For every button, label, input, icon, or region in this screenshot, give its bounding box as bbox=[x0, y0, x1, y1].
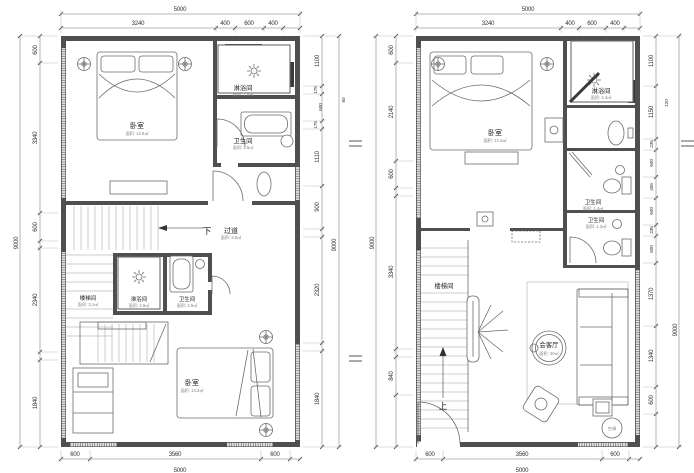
area-label: 面积: 1.8㎡ bbox=[233, 91, 255, 98]
ceiling-fan-icon bbox=[78, 58, 91, 71]
door-arc bbox=[213, 171, 243, 201]
bed bbox=[430, 52, 532, 164]
toilet bbox=[604, 239, 632, 256]
door-arc bbox=[570, 237, 596, 263]
dim-label: 3560 bbox=[169, 452, 182, 458]
room-label: 会客厅 bbox=[540, 340, 559, 349]
dim-label: 600 bbox=[587, 21, 597, 27]
area-label: 面积: 3.1㎡ bbox=[78, 301, 100, 308]
floor-plan-canvas: 5000 3240 400 600 400 600 3560 600 5000 … bbox=[0, 0, 694, 473]
direction-label: 下 bbox=[203, 226, 212, 236]
toilet bbox=[604, 177, 632, 194]
dim-label: 3340 bbox=[33, 131, 39, 144]
bathtub bbox=[170, 256, 193, 292]
wardrobe bbox=[73, 368, 113, 433]
stair-railing bbox=[467, 296, 508, 362]
stairs bbox=[80, 322, 168, 364]
dim-label: 9000 bbox=[673, 323, 679, 336]
dim-label: 600 bbox=[610, 452, 620, 458]
dim-label: 840 bbox=[389, 370, 395, 380]
down-arrow bbox=[158, 225, 204, 231]
dim-label: 1100 bbox=[649, 54, 655, 67]
door-arc bbox=[212, 276, 230, 294]
dim-label: 900 bbox=[315, 201, 321, 211]
dim-label: 600 bbox=[649, 159, 655, 167]
area-label: 面积: 1.4㎡ bbox=[583, 205, 605, 212]
room-label: 楼梯间 bbox=[435, 281, 454, 290]
dim-label: 600 bbox=[244, 21, 254, 27]
dim-label: 1840 bbox=[315, 392, 321, 405]
dim-label: 3560 bbox=[516, 452, 529, 458]
shower-room-box bbox=[218, 45, 290, 93]
cabinet bbox=[512, 231, 540, 242]
area-label: 面积: 2.5㎡ bbox=[177, 302, 199, 309]
dim-label: 1840 bbox=[33, 396, 39, 409]
dim-label: 3240 bbox=[482, 21, 495, 27]
dim-label: 600 bbox=[389, 44, 395, 54]
dim-label: 5000 bbox=[174, 7, 187, 13]
dim-label: 600 bbox=[270, 452, 280, 458]
dim-label: 3340 bbox=[389, 265, 395, 278]
room-label: 卧室 bbox=[185, 378, 199, 387]
dim-label: 600 bbox=[649, 245, 655, 253]
room-label: 淋浴间 bbox=[131, 295, 148, 303]
room-label: 淋浴间 bbox=[592, 86, 611, 95]
dim-label: 2320 bbox=[315, 283, 321, 296]
ceiling-fan-icon bbox=[541, 58, 554, 71]
dim-label: 400 bbox=[565, 21, 575, 27]
dim-label: 600 bbox=[318, 103, 324, 111]
break-marker bbox=[349, 141, 694, 361]
dim-label: 1340 bbox=[649, 349, 655, 362]
dim-label: 600 bbox=[649, 207, 655, 215]
dim-label: 9000 bbox=[370, 236, 376, 249]
dim-label: 455 bbox=[649, 183, 655, 191]
dim-label: 9000 bbox=[332, 238, 338, 251]
area-label: 面积: 14.3㎡ bbox=[180, 387, 204, 394]
dim-label: 600 bbox=[425, 452, 435, 458]
dim-label: 9000 bbox=[14, 236, 20, 249]
dim-label: 1150 bbox=[649, 105, 655, 118]
faucet bbox=[628, 128, 633, 138]
area-label: 面积: 12.4㎡ bbox=[483, 137, 507, 144]
vent-symbol bbox=[613, 220, 622, 229]
dim-label: 2140 bbox=[389, 105, 395, 118]
dim-label: 175 bbox=[313, 121, 319, 129]
dim-label: 400 bbox=[268, 21, 278, 27]
nightstand bbox=[545, 118, 563, 142]
area-label: 面积: 2.4㎡ bbox=[591, 94, 613, 101]
dim-label: 1370 bbox=[649, 287, 655, 300]
dim-label: 5000 bbox=[174, 468, 187, 473]
ceiling-fan-icon bbox=[179, 58, 192, 71]
dim-label: 600 bbox=[33, 44, 39, 54]
dim-label: 235 bbox=[649, 226, 655, 234]
room-label: 淋浴间 bbox=[234, 83, 253, 92]
right-plan: 5000 3240 400 600 400 600 3560 600 5000 … bbox=[370, 7, 682, 473]
sofa bbox=[577, 289, 628, 405]
room-label: 卫生间 bbox=[234, 136, 253, 145]
dim-label: 2340 bbox=[33, 293, 39, 306]
ac-label: 空调 bbox=[608, 425, 616, 432]
room-label: 过道 bbox=[224, 226, 238, 235]
vent-symbol bbox=[616, 166, 625, 175]
dim-label: 60 bbox=[341, 97, 347, 102]
room-label: 楼梯间 bbox=[80, 294, 97, 302]
dim-label: 600 bbox=[33, 221, 39, 231]
armchair bbox=[522, 385, 561, 424]
area-label: 面积: 2.6㎡ bbox=[129, 302, 151, 309]
dim-label: 120 bbox=[664, 99, 670, 107]
area-label: 面积: 12.6㎡ bbox=[125, 130, 149, 137]
ceiling-fan-icon bbox=[260, 424, 273, 437]
sink bbox=[477, 212, 493, 226]
door-leaf bbox=[569, 152, 592, 177]
up-arrow bbox=[440, 347, 447, 398]
dim-label: 600 bbox=[70, 452, 80, 458]
area-label: 面积: 1.3㎡ bbox=[586, 223, 608, 230]
area-label: 面积: 2.5㎡ bbox=[233, 144, 255, 151]
stairs bbox=[74, 181, 167, 250]
bathtub bbox=[241, 112, 291, 136]
dim-label: 1110 bbox=[315, 150, 321, 163]
direction-label: 上 bbox=[439, 401, 448, 411]
dim-label: 235 bbox=[649, 140, 655, 148]
dim-label: 600 bbox=[649, 394, 655, 404]
room-label: 卫生间 bbox=[179, 295, 196, 303]
ceiling-fan-icon bbox=[432, 58, 445, 71]
sink bbox=[281, 135, 293, 147]
dim-label: 400 bbox=[610, 21, 620, 27]
sink bbox=[196, 260, 205, 269]
area-label: 面积: 3.0㎡ bbox=[221, 234, 243, 241]
dim-label: 175 bbox=[313, 86, 319, 94]
sink bbox=[608, 121, 624, 145]
dim-label: 400 bbox=[220, 21, 230, 27]
ceiling-fan-icon bbox=[260, 331, 273, 344]
floor-plan-drawing: 5000 3240 400 600 400 600 3560 600 5000 … bbox=[0, 0, 694, 473]
room-label: 卧室 bbox=[488, 128, 502, 137]
room-label: 卫生间 bbox=[588, 216, 605, 224]
dim-label: 5000 bbox=[522, 7, 535, 13]
dim-label: 3240 bbox=[132, 21, 145, 27]
dim-label: 1100 bbox=[315, 54, 321, 67]
sink bbox=[257, 172, 271, 196]
room-label: 卧室 bbox=[130, 121, 144, 130]
room-label: 卫生间 bbox=[585, 198, 602, 206]
left-plan: 5000 3240 400 600 400 600 3560 600 5000 … bbox=[14, 7, 347, 473]
dim-label: 5000 bbox=[516, 468, 529, 473]
dim-label: 600 bbox=[389, 168, 395, 178]
area-label: 面积: 20㎡ bbox=[539, 350, 559, 357]
coffee-table bbox=[593, 399, 612, 416]
